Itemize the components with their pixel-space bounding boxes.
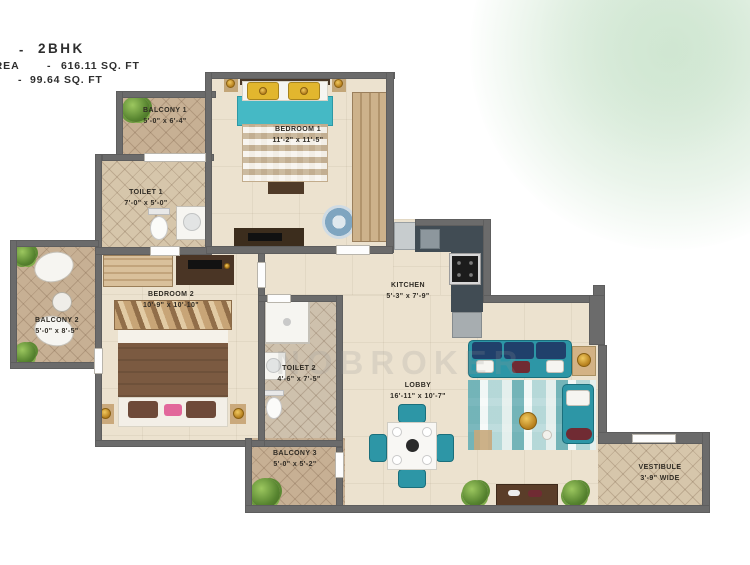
bedroom1-label: BEDROOM 1 11'-2" x 11'-5" [233,125,363,146]
wall-segment [116,91,216,98]
bedroom2-label: BEDROOM 2 10'-9" x 10'-10" [106,290,236,311]
balcony3-plant [250,478,280,508]
room-dims: 7'-0" x 5'-0" [81,199,211,210]
header-dash: - [19,42,23,57]
sofa-pillow-maroon [512,361,530,373]
toilet1-label: TOILET 1 7'-0" x 5'-0" [81,188,211,209]
room-dims: 10'-9" x 10'-10" [106,301,236,312]
lobby-plant-left [462,480,488,506]
room-dims: 16'-11" x 10'-7" [353,392,483,403]
toilet2-bowl [266,397,282,419]
kitchen-sink [420,229,440,249]
toilet2-tank [264,390,284,396]
room-dims: 11'-2" x 11'-5" [233,136,363,147]
dining-plate-2 [422,427,432,437]
balcony3-label: BALCONY 3 5'-0" x 5'-2" [230,449,360,470]
bed1-lamp-left [226,79,235,88]
wall-segment [415,219,491,226]
dining-centerpiece [406,439,419,452]
balcony2-plant-top [14,244,36,266]
kitchen-stove-top [452,256,478,282]
kitchen-fridge [394,222,416,250]
chaise-roll [566,428,592,440]
living-side-lamp [577,353,591,367]
area2-value: 99.64 SQ. FT [30,74,103,86]
bed2-pillow-right [186,401,216,418]
bed1-pillow-knot-left [259,87,267,95]
bed2-pillow-pink [164,404,182,416]
bed2-blanket [118,343,228,397]
sofa-cushion-3 [536,342,566,359]
bedroom2-dresser-decor [224,263,230,269]
bedroom2-tv [188,260,222,269]
lobby-label: LOBBY 16'-11" x 10'-7" [353,381,483,402]
sofa-cushion-2 [504,342,534,359]
sofa-cushion-1 [472,342,502,359]
dining-chair-left [369,434,387,462]
room-dims: 5'-0" x 8'-5" [0,327,122,338]
sofa-pillow-white-left [476,360,494,373]
wall-segment [483,295,593,303]
floor-plan-page: { "header": { "dash": "-", "title": "2BH… [0,0,750,565]
bed2-pillow-left [128,401,158,418]
area-value: 616.11 SQ. FT [61,60,140,72]
area-dash: - [47,60,51,72]
bedroom1-rug [322,205,356,239]
wall-segment [386,72,394,253]
toilet1-basin [183,213,201,231]
room-name: TOILET 1 [81,188,211,199]
toilet1-tank [148,208,170,215]
chaise-pillow [566,390,590,406]
dining-chair-top [398,404,426,423]
room-name: BEDROOM 1 [233,125,363,136]
room-name: VESTIBULE [595,463,725,474]
entrance-door [632,434,676,443]
bed1-lamp-right [334,79,343,88]
dining-chair-right [436,434,454,462]
kitchen-cabinet-low [452,312,482,338]
wall-segment [205,72,212,255]
plan-title: 2BHK [38,41,85,56]
room-name: BALCONY 1 [100,106,230,117]
room-name: BALCONY 2 [0,316,122,327]
wall-segment [10,362,99,369]
room-name: BALCONY 3 [230,449,360,460]
toilet2-label: TOILET 2 4'-6" x 7'-5" [234,364,364,385]
room-dims: 5'-0" x 6'-4" [100,117,230,128]
dining-chair-bottom [398,469,426,488]
wall-segment [10,240,17,369]
wall-segment [258,440,343,447]
toilet2-shower-drain [283,318,291,326]
dining-plate-4 [422,455,432,465]
wall-segment [598,345,607,435]
wall-segment [245,505,710,513]
lobby-plant-right [562,480,588,506]
balcony2-label: BALCONY 2 5'-0" x 8'-5" [0,316,122,337]
wall-segment [589,295,605,345]
bedroom2-door [257,262,266,288]
balcony1-window-sill [144,153,206,162]
toilet2-door [267,294,291,303]
room-name: TOILET 2 [234,364,364,375]
bedroom1-door [336,245,370,255]
room-dims: 3'-9" WIDE [595,474,725,485]
bed2-sheet-band [118,330,228,343]
room-dims: 5'-3" x 7'-9" [343,292,473,303]
living-bowl [542,430,552,440]
dining-plate-3 [392,455,402,465]
toilet1-bowl [150,216,168,240]
kitchen-label: KITCHEN 5'-3" x 7'-9" [343,281,473,302]
area2-dash: - [18,74,22,86]
lobby-console-decor [528,490,542,497]
room-dims: 4'-6" x 7'-5" [234,375,364,386]
room-name: KITCHEN [343,281,473,292]
area-label: AREA [0,60,20,72]
sofa-pillow-white-right [546,360,564,373]
wall-segment [483,219,491,303]
bed1-foot-bench [268,182,304,194]
room-name: BEDROOM 2 [106,290,236,301]
room-name: LOBBY [353,381,483,392]
balcony2-door [94,348,103,374]
bedroom1-tv [248,233,282,241]
balcony2-plant-bottom [14,342,36,364]
vestibule-label: VESTIBULE 3'-9" WIDE [595,463,725,484]
living-coffee-table [519,412,537,430]
balcony1-label: BALCONY 1 5'-0" x 6'-4" [100,106,230,127]
bedroom1-wardrobe [352,92,390,242]
room-dims: 5'-0" x 5'-2" [230,460,360,471]
balcony2-table [52,292,72,312]
wall-segment [10,240,99,247]
lobby-console-dish [508,490,520,496]
bed1-pillow-knot-right [300,87,308,95]
bed2-lamp-right [233,408,244,419]
dining-plate-1 [392,427,402,437]
wall-segment [205,72,395,79]
toilet1-door [150,246,180,256]
bedroom2-wardrobe [103,255,173,287]
living-rug-ottoman [474,430,492,450]
wall-segment [95,440,265,447]
